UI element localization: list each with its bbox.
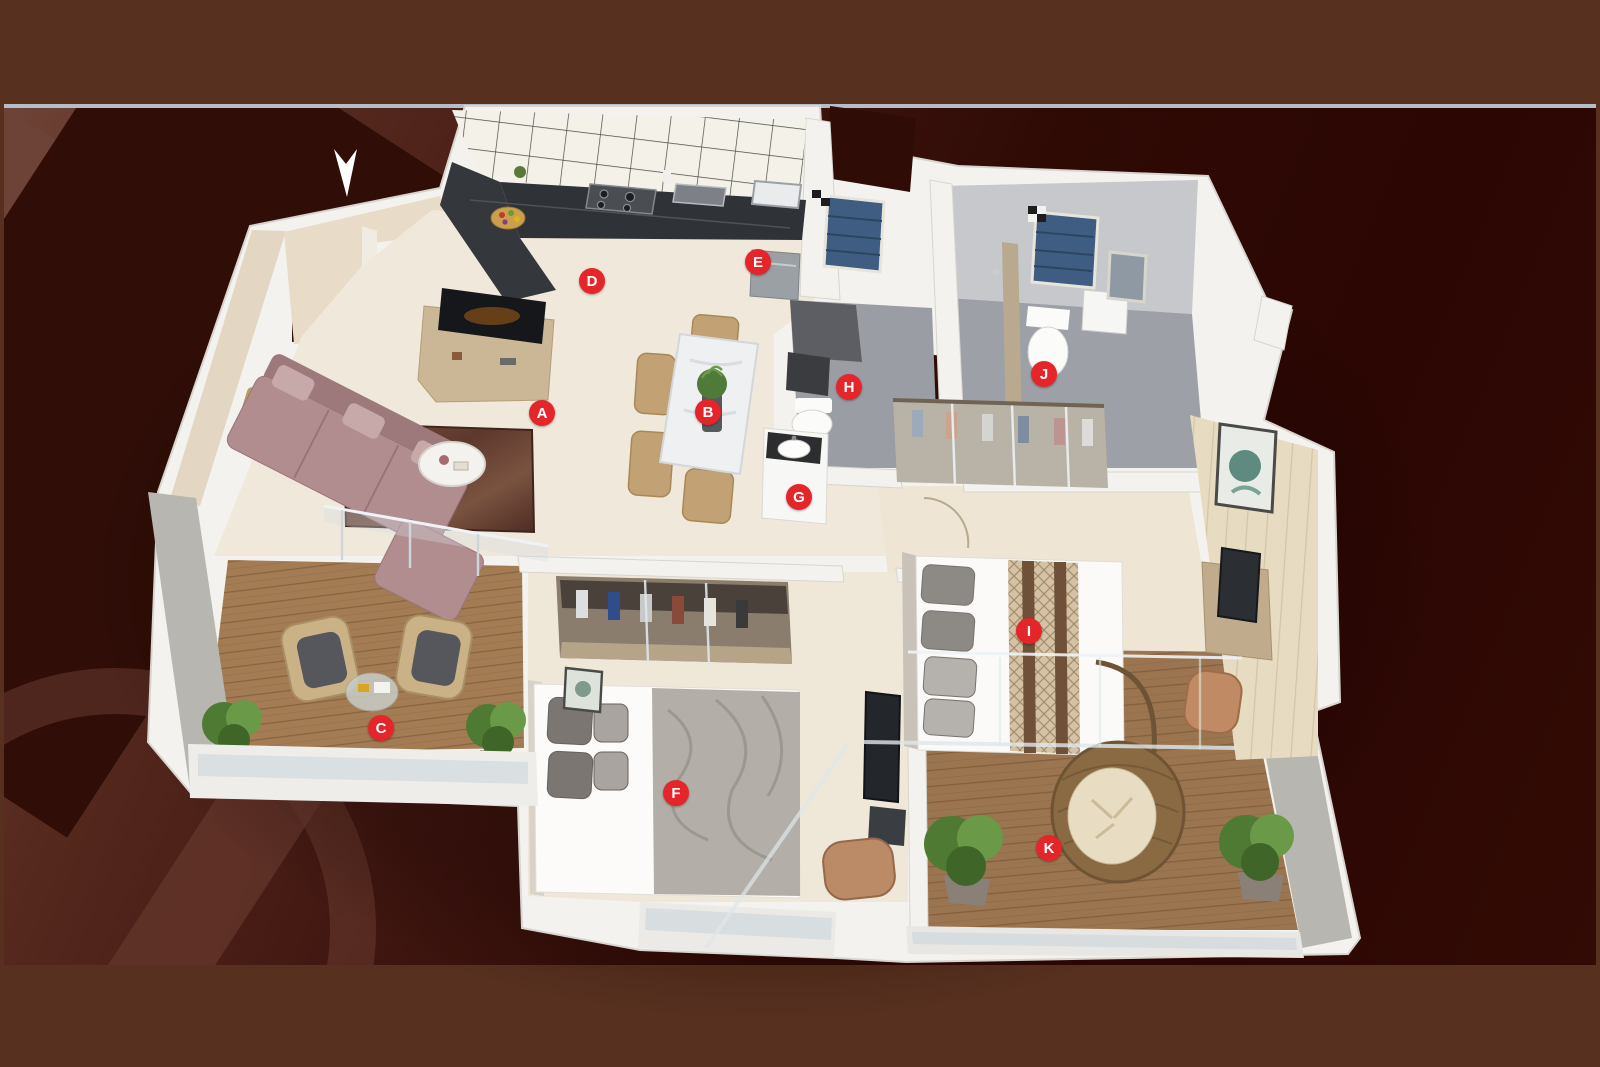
toilet-j-tank xyxy=(1026,306,1070,330)
brochure-page: ABCDEFGHIJK xyxy=(0,0,1600,1067)
kitchen-sink xyxy=(673,184,726,206)
master-wall-art xyxy=(1216,424,1276,512)
marker-c: C xyxy=(368,715,394,741)
mirror-j xyxy=(1108,252,1146,302)
stove xyxy=(586,184,656,214)
fruit-basket xyxy=(491,207,525,229)
marker-j: J xyxy=(1031,361,1057,387)
f-deck-chair xyxy=(821,837,897,902)
marker-g: G xyxy=(786,484,812,510)
balcony-table xyxy=(346,673,398,711)
kitchen-sink-2 xyxy=(752,181,801,208)
marker-a: A xyxy=(529,400,555,426)
kitchen-plant xyxy=(514,166,526,178)
f-tv xyxy=(864,692,900,802)
shower-h xyxy=(790,300,862,362)
master-bed-runner xyxy=(1008,560,1080,754)
marker-f: F xyxy=(663,780,689,806)
marker-d: D xyxy=(579,268,605,294)
vanity-h xyxy=(786,352,830,396)
marker-b: B xyxy=(695,399,721,425)
marker-k: K xyxy=(1036,835,1062,861)
kitchen-jar xyxy=(663,170,671,183)
floor-plan-drawing xyxy=(0,0,1600,1067)
table-plant xyxy=(697,369,727,399)
marker-e: E xyxy=(745,249,771,275)
master-tv xyxy=(1218,548,1260,622)
chair-2-cushion xyxy=(410,629,462,688)
north-arrow-icon xyxy=(334,149,357,197)
shower-head-j xyxy=(992,268,1000,276)
coffee-table xyxy=(419,442,485,486)
opening-above-bath xyxy=(826,106,916,192)
master-chair xyxy=(1182,669,1244,736)
dining-chair-bottom xyxy=(682,468,734,524)
marker-h: H xyxy=(836,374,862,400)
marker-i: I xyxy=(1016,618,1042,644)
